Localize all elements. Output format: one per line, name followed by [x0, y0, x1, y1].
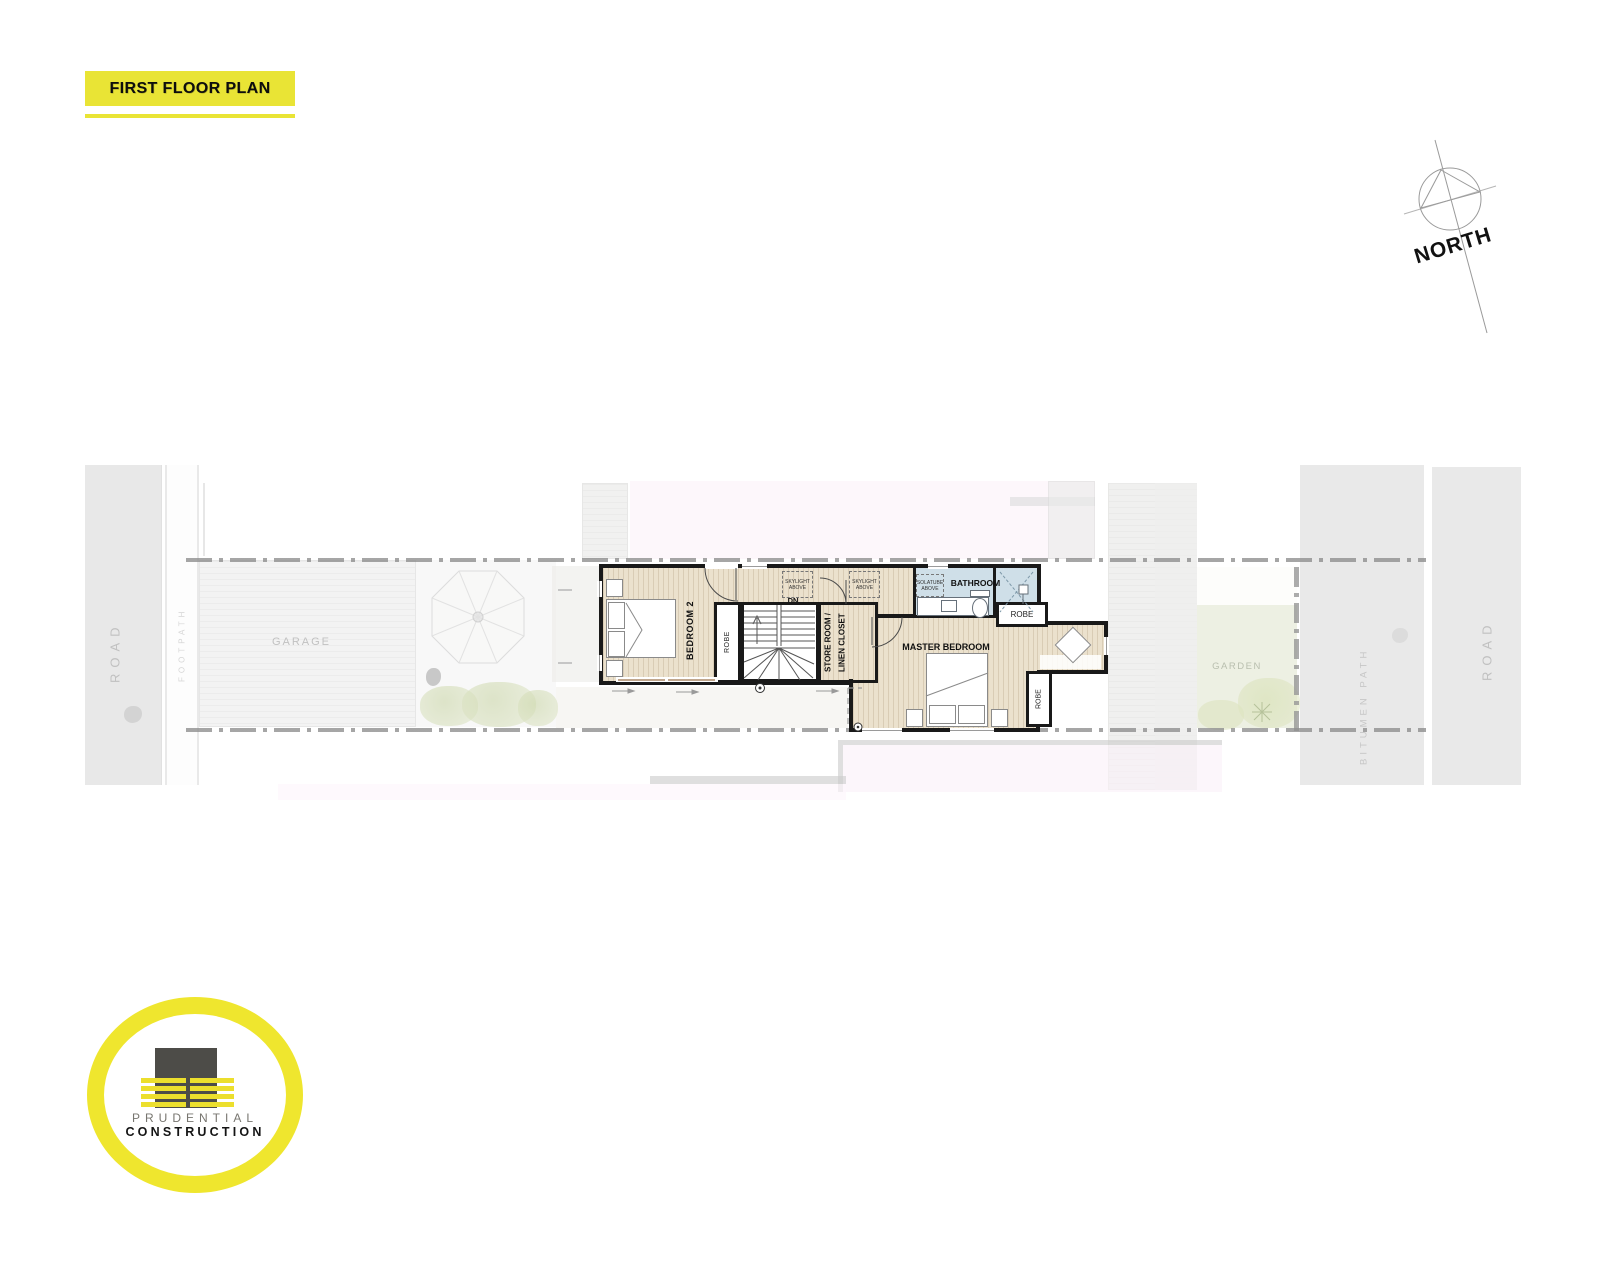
bathroom-label: BATHROOM: [938, 578, 1013, 588]
patio-below: [556, 687, 848, 728]
nightstand: [906, 709, 923, 727]
staircase: [741, 602, 819, 683]
logo-stripe: [141, 1094, 186, 1099]
north-label: NORTH: [1412, 223, 1495, 268]
logo-stripe: [190, 1094, 234, 1099]
page-title: FIRST FLOOR PLAN: [85, 71, 295, 106]
neighbor-fence-line: [203, 483, 205, 556]
pillow: [929, 705, 956, 724]
sliding-door-leaf: [668, 679, 715, 681]
window: [950, 728, 994, 733]
boundary-line-north: [186, 558, 1426, 562]
window: [742, 564, 767, 569]
bitumen-path-label: BITUMEN PATH: [1356, 625, 1372, 787]
neighbor-pink-top: [630, 481, 1095, 559]
robe-closet: ROBE: [714, 602, 741, 683]
nightstand: [991, 709, 1008, 727]
nightstand: [606, 579, 623, 597]
robe-closet-wing: ROBE: [1026, 671, 1052, 727]
hall-wall: [878, 614, 916, 618]
path-road-divider: [1424, 465, 1432, 785]
title-underline: [85, 114, 295, 118]
company-logo: PRUDENTIAL CONSTRUCTION: [80, 990, 320, 1205]
garage-label: GARAGE: [244, 636, 359, 650]
boundary-line-south: [186, 728, 1426, 732]
window: [597, 655, 602, 671]
garden-label: GARDEN: [1200, 661, 1274, 673]
bedroom2-label: BEDROOM 2: [683, 585, 697, 675]
neighbor-pink-bottom-right: [838, 740, 1222, 792]
pillow: [608, 631, 625, 657]
neighbor-roof-corner: [1048, 481, 1095, 559]
robe-closet-master: ROBE: [996, 602, 1048, 627]
toilet-bowl: [972, 598, 988, 618]
pillow: [608, 602, 625, 629]
toilet-tank: [970, 590, 990, 597]
master-bedroom-label: MASTER BEDROOM: [876, 642, 1016, 653]
road-right-label: ROAD: [1478, 598, 1496, 702]
neighbor-gray-bar-bottom: [650, 776, 846, 784]
logo-name-line1: PRUDENTIAL: [110, 1111, 280, 1125]
window: [1104, 637, 1109, 655]
logo-stripe: [141, 1086, 186, 1091]
logo-stripe: [190, 1078, 234, 1083]
road-right: [1432, 467, 1521, 785]
garden-upper: [1197, 567, 1297, 605]
door-opening: [705, 564, 738, 569]
logo-stripe: [141, 1102, 186, 1107]
logo-name-line2: CONSTRUCTION: [110, 1125, 280, 1139]
window: [862, 728, 902, 733]
neighbor-roof-left: [582, 483, 628, 559]
store-room-label: STORE ROOM / LINEN CLOSET: [821, 605, 849, 680]
sink: [941, 600, 957, 612]
skylight-above-note: SKYLIGHT ABOVE: [849, 571, 880, 598]
logo-stripe: [190, 1102, 234, 1107]
window: [597, 581, 602, 597]
logo-stripe: [190, 1086, 234, 1091]
garden-fence: [1294, 567, 1299, 731]
nightstand: [606, 660, 623, 677]
footpath-label: FOOTPATH: [170, 575, 194, 715]
road-left-label: ROAD: [96, 598, 134, 706]
logo-stripe: [141, 1078, 186, 1083]
garden-bush: [1198, 700, 1244, 730]
north-compass-icon: [1404, 140, 1496, 333]
window: [928, 564, 948, 569]
garden-bush: [1238, 678, 1300, 728]
floor-plan-page: FIRST FLOOR PLAN ROAD FOOTPATH GARAGE GA…: [0, 0, 1600, 1278]
neighbor-pink-bottom-left: [278, 784, 846, 800]
sliding-door-leaf: [618, 679, 665, 681]
deck-left: [552, 566, 600, 682]
bush: [518, 690, 558, 726]
pillow: [958, 705, 985, 724]
skylight-above-note: SKYLIGHT ABOVE: [782, 571, 813, 598]
